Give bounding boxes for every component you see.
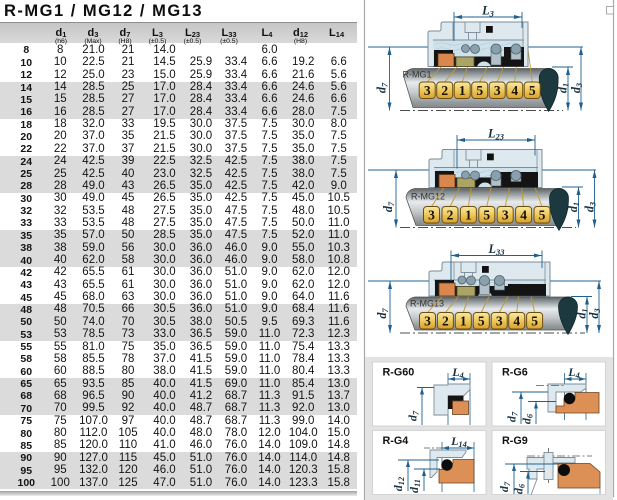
svg-text:d3: d3	[583, 201, 598, 212]
svg-text:R-G4: R-G4	[383, 435, 409, 447]
svg-text:R-G60: R-G60	[383, 367, 415, 379]
svg-text:2: 2	[447, 207, 454, 222]
svg-text:3: 3	[428, 207, 435, 222]
svg-text:2: 2	[441, 83, 448, 98]
svg-text:L3: L3	[481, 4, 494, 19]
svg-text:d7: d7	[375, 82, 390, 93]
svg-text:2: 2	[442, 313, 449, 328]
svg-text:3: 3	[502, 207, 509, 222]
svg-text:3: 3	[494, 83, 501, 98]
svg-text:1: 1	[459, 83, 466, 98]
svg-text:L23: L23	[487, 127, 505, 142]
svg-text:4: 4	[513, 313, 520, 328]
svg-text:L33: L33	[488, 242, 506, 257]
svg-text:5: 5	[483, 207, 490, 222]
svg-text:5: 5	[531, 313, 538, 328]
svg-text:R-MG1: R-MG1	[403, 70, 432, 80]
svg-text:3: 3	[496, 313, 503, 328]
svg-text:d3: d3	[569, 82, 584, 93]
svg-text:1: 1	[460, 313, 467, 328]
svg-text:1: 1	[465, 207, 472, 222]
svg-text:5: 5	[539, 207, 546, 222]
svg-text:d7: d7	[381, 201, 396, 212]
svg-text:R-G9: R-G9	[502, 435, 528, 447]
svg-text:5: 5	[478, 313, 485, 328]
svg-text:3: 3	[424, 313, 431, 328]
svg-text:R-G6: R-G6	[502, 367, 528, 379]
svg-text:d7: d7	[375, 308, 390, 319]
svg-text:4: 4	[511, 83, 518, 98]
svg-text:5: 5	[529, 83, 536, 98]
svg-text:3: 3	[424, 83, 431, 98]
svg-text:5: 5	[476, 83, 483, 98]
svg-text:4: 4	[520, 207, 527, 222]
